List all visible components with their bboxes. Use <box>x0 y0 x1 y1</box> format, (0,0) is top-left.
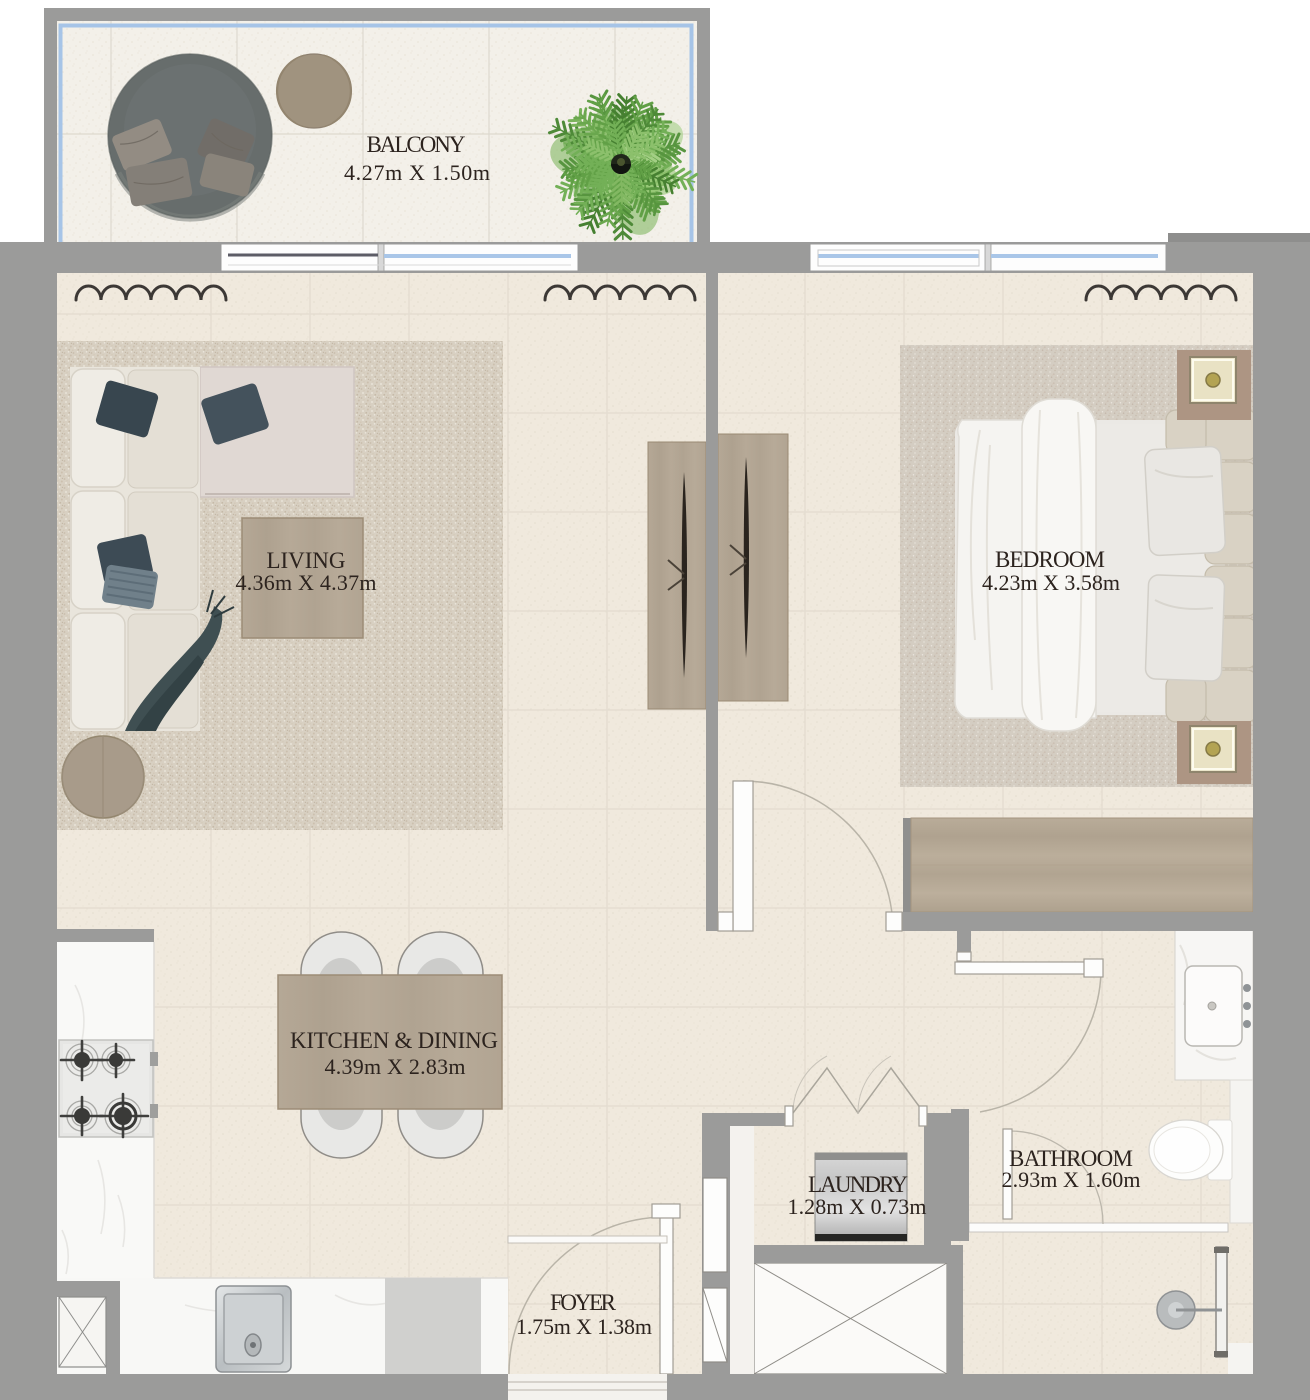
svg-text:1.28m X 0.73m: 1.28m X 0.73m <box>788 1194 927 1219</box>
svg-text:FOYER: FOYER <box>550 1290 617 1315</box>
svg-text:BALCONY: BALCONY <box>367 132 466 157</box>
svg-text:KITCHEN & DINING: KITCHEN & DINING <box>290 1028 498 1053</box>
svg-text:4.27m X 1.50m: 4.27m X 1.50m <box>344 160 490 185</box>
svg-text:2.93m X 1.60m: 2.93m X 1.60m <box>1002 1167 1141 1192</box>
svg-text:4.23m X 3.58m: 4.23m X 3.58m <box>982 570 1120 595</box>
svg-text:1.75m X 1.38m: 1.75m X 1.38m <box>516 1314 652 1339</box>
svg-text:4.39m X 2.83m: 4.39m X 2.83m <box>325 1054 466 1079</box>
svg-text:BEDROOM: BEDROOM <box>995 547 1105 572</box>
svg-text:4.36m X 4.37m: 4.36m X 4.37m <box>236 570 377 595</box>
